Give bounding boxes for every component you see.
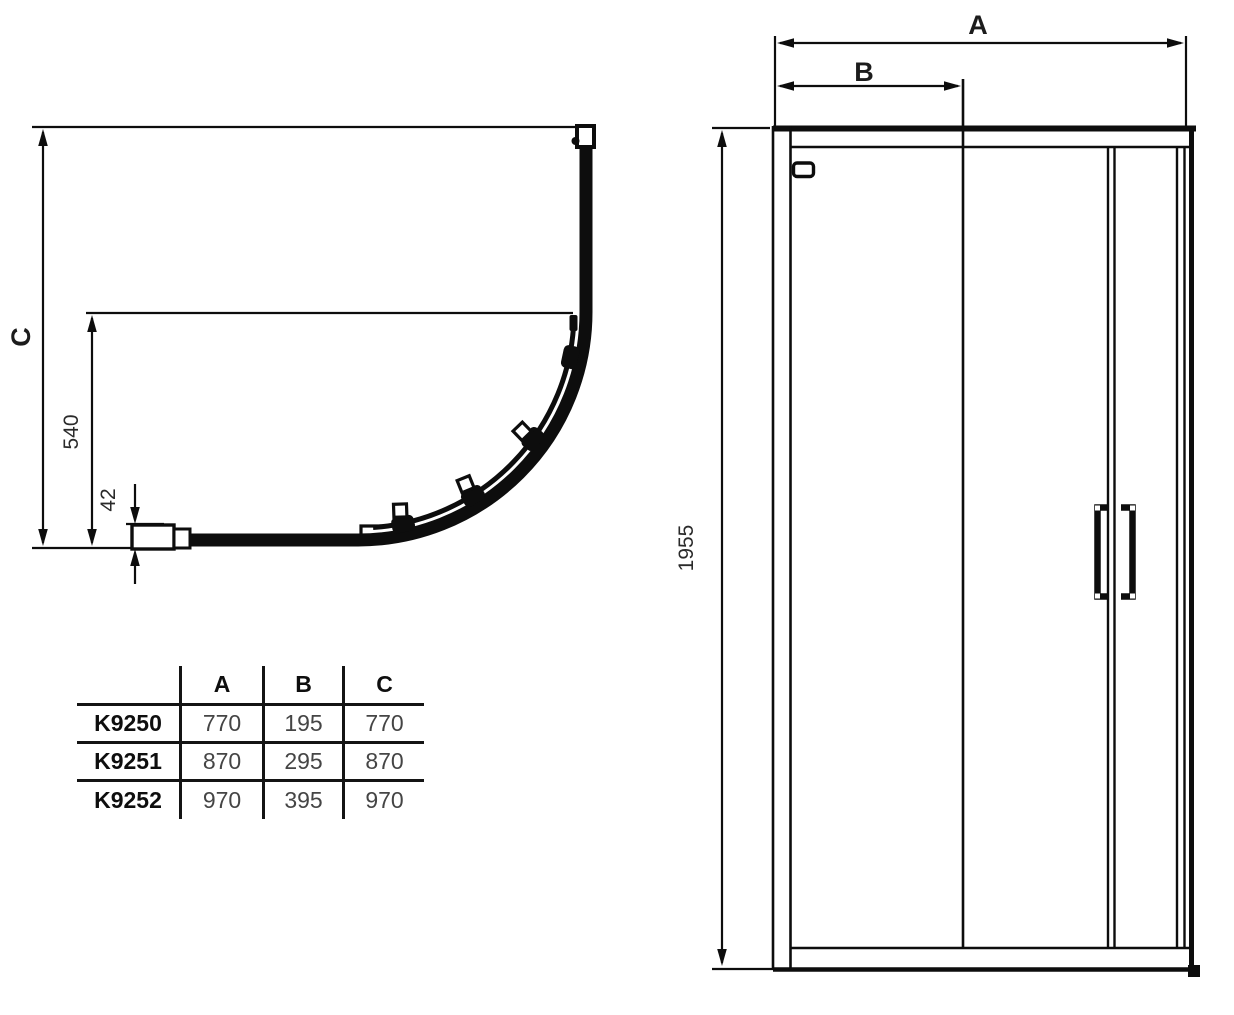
right-frame-foot	[1188, 965, 1200, 977]
spec-header-model	[77, 666, 181, 705]
value-cell: 870	[181, 743, 264, 781]
elevation-view: A B 1955	[675, 10, 1200, 977]
table-row: K9251 870 295 870	[77, 743, 424, 781]
dim-540-label: 540	[60, 414, 83, 449]
wall-profile-nub	[572, 137, 580, 145]
door-arc-top-cap	[570, 315, 578, 331]
value-cell: 870	[344, 743, 425, 781]
value-cell: 770	[344, 705, 425, 743]
dim-540	[87, 315, 97, 546]
dim-depth-C	[38, 129, 48, 546]
model-cell: K9252	[77, 781, 181, 819]
shower-enclosure-drawing: C 540 42	[0, 0, 1234, 1015]
value-cell: 295	[264, 743, 344, 781]
wall-profile-bottom-plan	[132, 525, 174, 549]
value-cell: 395	[264, 781, 344, 819]
wall-profile-top-plan	[577, 126, 594, 147]
spec-header-a: A	[181, 666, 264, 705]
roller-bracket	[393, 504, 406, 517]
dim-door-width-label: B	[854, 57, 874, 87]
value-cell: 770	[181, 705, 264, 743]
spec-header-b: B	[264, 666, 344, 705]
table-row: K9252 970 395 970	[77, 781, 424, 819]
model-cell: K9251	[77, 743, 181, 781]
value-cell: 970	[344, 781, 425, 819]
technical-drawing-page: C 540 42	[0, 0, 1234, 1015]
value-cell: 195	[264, 705, 344, 743]
spec-table: A B C K9250 770 195 770 K9251 870 295 87…	[77, 666, 424, 819]
door-handle-right	[1115, 506, 1136, 599]
dim-depth-label: C	[6, 327, 36, 347]
plan-view: C 540 42	[6, 126, 594, 584]
model-cell: K9250	[77, 705, 181, 743]
dim-height-label: 1955	[675, 525, 698, 572]
table-row: K9250 770 195 770	[77, 705, 424, 743]
door-handle-left	[1095, 506, 1108, 599]
value-cell: 970	[181, 781, 264, 819]
spec-table-header-row: A B C	[77, 666, 424, 705]
dim-height-1955	[712, 128, 788, 969]
curved-glass-plan	[186, 147, 586, 540]
wall-profile-bracket	[174, 529, 190, 548]
spec-header-c: C	[344, 666, 425, 705]
roller-bracket	[457, 476, 474, 493]
dim-width-label: A	[968, 10, 988, 40]
dim-42-label: 42	[97, 488, 120, 511]
dim-width-A	[775, 36, 1186, 127]
wall-bracket-hook	[794, 163, 814, 177]
